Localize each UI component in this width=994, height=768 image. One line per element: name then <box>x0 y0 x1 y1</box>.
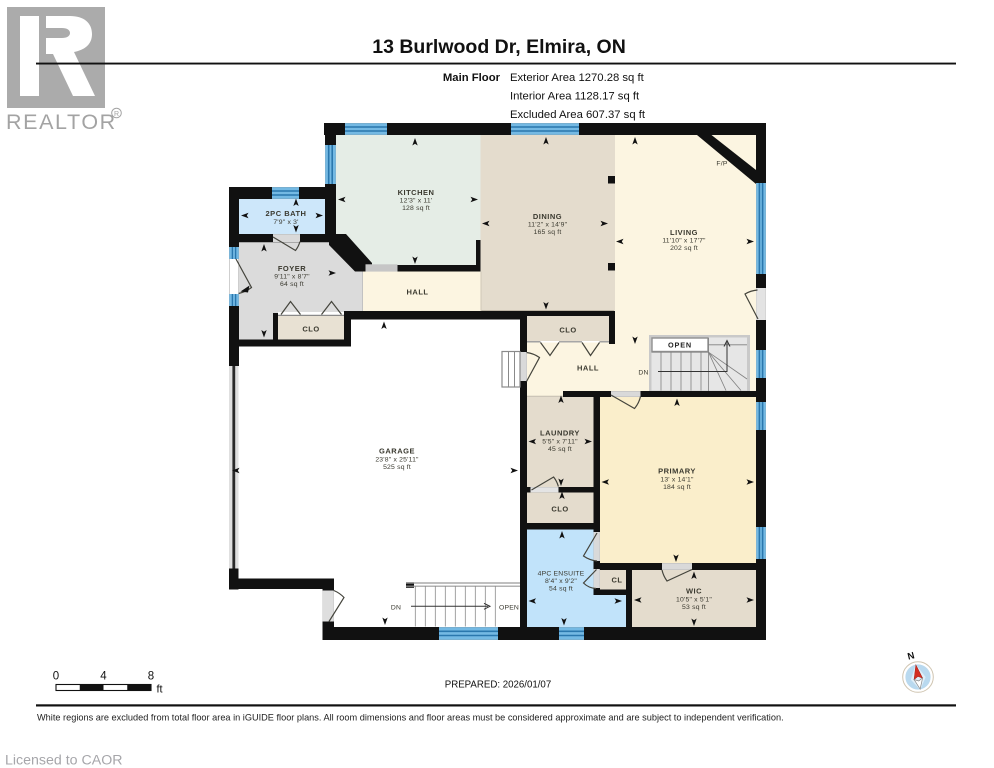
svg-text:13 Burlwood Dr, Elmira, ON: 13 Burlwood Dr, Elmira, ON <box>372 36 626 58</box>
svg-text:9'11" x 8'7": 9'11" x 8'7" <box>274 274 310 281</box>
svg-text:8'4" x 9'2": 8'4" x 9'2" <box>545 578 577 585</box>
svg-text:525 sq ft: 525 sq ft <box>383 464 411 471</box>
svg-text:11'2" x 14'9": 11'2" x 14'9" <box>528 221 568 228</box>
svg-text:10'5" x 5'1": 10'5" x 5'1" <box>676 596 712 603</box>
svg-text:CLO: CLO <box>302 325 319 334</box>
svg-text:Main Floor: Main Floor <box>443 72 501 84</box>
svg-text:12'3" x 11': 12'3" x 11' <box>400 198 433 205</box>
svg-text:202 sq ft: 202 sq ft <box>670 245 698 252</box>
svg-text:Exterior Area 1270.28 sq ft: Exterior Area 1270.28 sq ft <box>510 72 645 84</box>
svg-text:8: 8 <box>148 671 154 683</box>
svg-text:HALL: HALL <box>577 364 599 373</box>
svg-text:R: R <box>114 111 119 118</box>
svg-text:5'5" x 7'11": 5'5" x 7'11" <box>542 438 578 445</box>
svg-text:2PC BATH: 2PC BATH <box>266 209 307 218</box>
svg-text:Excluded Area 607.37 sq ft: Excluded Area 607.37 sq ft <box>510 109 646 121</box>
svg-text:7'9" x 3': 7'9" x 3' <box>273 219 298 226</box>
svg-text:165 sq ft: 165 sq ft <box>534 229 562 236</box>
svg-text:FOYER: FOYER <box>278 264 306 273</box>
svg-text:HALL: HALL <box>407 288 429 297</box>
svg-text:KITCHEN: KITCHEN <box>398 188 435 197</box>
svg-text:53 sq ft: 53 sq ft <box>682 604 706 611</box>
svg-text:Licensed to CAOR: Licensed to CAOR <box>5 753 123 768</box>
svg-text:DINING: DINING <box>533 212 562 221</box>
svg-text:CLO: CLO <box>551 505 568 514</box>
svg-text:OPEN: OPEN <box>499 605 519 612</box>
svg-text:54 sq ft: 54 sq ft <box>549 585 573 592</box>
svg-text:LIVING: LIVING <box>670 228 698 237</box>
svg-text:WIC: WIC <box>686 587 702 596</box>
svg-text:23'8" x 25'11": 23'8" x 25'11" <box>375 456 419 463</box>
svg-text:White regions are excluded fro: White regions are excluded from total fl… <box>37 713 784 723</box>
svg-text:LAUNDRY: LAUNDRY <box>540 429 580 438</box>
svg-text:F/P: F/P <box>716 161 727 168</box>
svg-text:PREPARED: 2026/01/07: PREPARED: 2026/01/07 <box>445 680 551 691</box>
svg-text:0: 0 <box>53 671 59 683</box>
svg-text:ft: ft <box>157 684 163 696</box>
svg-text:CLO: CLO <box>559 326 576 335</box>
svg-text:DN: DN <box>391 605 401 612</box>
svg-text:PRIMARY: PRIMARY <box>658 467 696 476</box>
svg-text:128 sq ft: 128 sq ft <box>402 205 430 212</box>
svg-text:GARAGE: GARAGE <box>379 447 415 456</box>
svg-text:184 sq ft: 184 sq ft <box>663 484 691 491</box>
svg-text:4: 4 <box>100 671 107 683</box>
svg-text:DN: DN <box>638 370 648 377</box>
svg-text:11'10" x 17'7": 11'10" x 17'7" <box>662 237 706 244</box>
svg-text:64 sq ft: 64 sq ft <box>280 281 304 288</box>
svg-text:13' x 14'1": 13' x 14'1" <box>660 476 694 483</box>
svg-text:OPEN: OPEN <box>668 340 692 349</box>
svg-text:45 sq ft: 45 sq ft <box>548 446 572 453</box>
svg-text:4PC ENSUITE: 4PC ENSUITE <box>538 571 585 578</box>
svg-text:Interior Area 1128.17 sq ft: Interior Area 1128.17 sq ft <box>510 91 640 103</box>
svg-text:REALTOR: REALTOR <box>6 110 117 134</box>
svg-text:CL: CL <box>612 576 623 585</box>
